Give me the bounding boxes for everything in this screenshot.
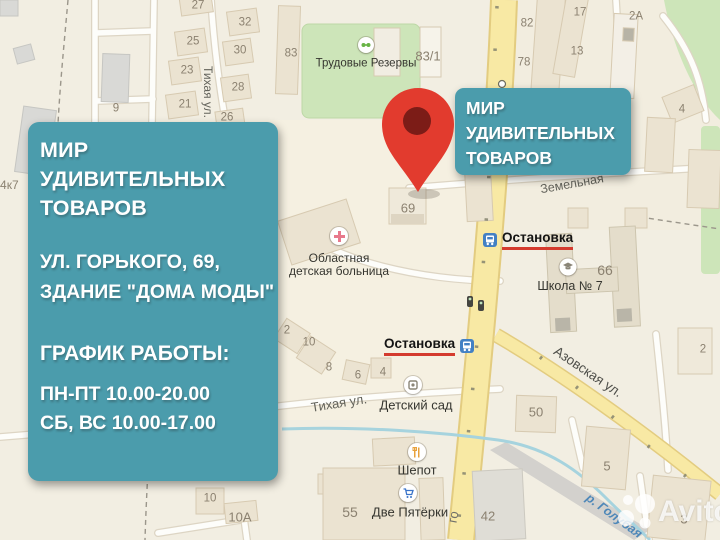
- house-number-label: 32: [239, 17, 252, 29]
- bus-stop-icon: [483, 233, 497, 247]
- shopping-cart-icon: [399, 484, 417, 502]
- info-card-schedule-line: СБ, ВС 10.00-17.00: [40, 409, 278, 438]
- callout-line: УДИВИТЕЛЬНЫХ: [466, 121, 631, 146]
- house-number-label: 83: [285, 48, 298, 60]
- map-canvas[interactable]: Тихая ул. Тихая ул. Земельная Азовская у…: [0, 0, 720, 540]
- house-number-label: 55: [342, 505, 358, 519]
- house-number-label: 25: [187, 36, 200, 48]
- poi-label-kindergarten: Детский сад: [379, 399, 452, 412]
- house-number-label: 2А: [629, 11, 643, 23]
- house-number-label: 6: [355, 370, 361, 382]
- house-number-label: 42: [481, 510, 495, 523]
- kindergarten-icon: [404, 376, 422, 394]
- poi-label-shepot: Шепот: [397, 464, 436, 477]
- bus-stop-label: Остановка: [384, 336, 455, 356]
- bus-stop-label: Остановка: [502, 230, 573, 250]
- poi-label-hospital-line2: детская больница: [289, 265, 389, 277]
- house-number-label: 10: [204, 493, 217, 505]
- school-icon: [560, 259, 577, 276]
- poi-label-dve-pyaterki: Две Пятёрки: [372, 506, 448, 519]
- house-number-label: 30: [234, 45, 247, 57]
- info-card-title-line: МИР: [40, 136, 278, 165]
- avito-logo-icon: [614, 490, 658, 535]
- sports-ground-icon: [358, 37, 374, 53]
- poi-label-school: Школа № 7: [537, 280, 602, 293]
- poi-label-trudovye-rezervy: Трудовые Резервы: [316, 58, 417, 70]
- info-card-schedule-heading: ГРАФИК РАБОТЫ:: [40, 339, 278, 368]
- info-card: МИР УДИВИТЕЛЬНЫХ ТОВАРОВ УЛ. ГОРЬКОГО, 6…: [28, 122, 278, 481]
- info-card-title-line: УДИВИТЕЛЬНЫХ: [40, 165, 278, 194]
- house-number-label: 27: [192, 0, 205, 12]
- house-number-label: 28: [232, 82, 245, 94]
- house-number-label: 69: [401, 202, 415, 215]
- house-number-label: 82: [521, 18, 534, 30]
- bus-stop-badge-south: Остановка: [384, 336, 474, 356]
- house-number-label: 21: [179, 99, 192, 111]
- bus-stop-icon: [460, 339, 474, 353]
- restaurant-icon: [408, 443, 426, 461]
- house-number-label: 2: [700, 344, 706, 356]
- house-number-label: 83/1: [415, 50, 440, 63]
- house-number-label: 2: [284, 325, 290, 337]
- house-number-label: 78: [518, 57, 531, 69]
- avito-watermark: Avito: [614, 490, 720, 535]
- house-number-label: 23: [181, 65, 194, 77]
- info-card-schedule-line: ПН-ПТ 10.00-20.00: [40, 380, 278, 409]
- hospital-icon: [330, 227, 348, 245]
- callout-line: МИР: [466, 96, 631, 121]
- house-number-label: 13: [571, 46, 584, 58]
- house-number-label: 4: [679, 104, 685, 116]
- house-number-label: 10А: [228, 511, 251, 524]
- info-card-title-line: ТОВАРОВ: [40, 194, 278, 223]
- house-number-label: 8: [326, 362, 332, 374]
- info-card-address-line: ЗДАНИЕ "ДОМА МОДЫ": [40, 277, 278, 307]
- avito-watermark-text: Avito: [658, 495, 720, 529]
- callout-line: ТОВАРОВ: [466, 146, 631, 171]
- marker-callout-card: МИР УДИВИТЕЛЬНЫХ ТОВАРОВ: [455, 88, 631, 175]
- bus-stop-badge-north: Остановка: [483, 230, 573, 250]
- house-number-label: 9: [113, 103, 119, 115]
- house-number-label: 66: [597, 263, 613, 277]
- map-pin-icon: [378, 84, 460, 200]
- street-label-tihaya-vertical: Тихая ул.: [202, 66, 214, 118]
- house-number-label: 64к7: [0, 179, 19, 191]
- house-number-label: 5: [603, 460, 610, 473]
- house-number-label: 10: [303, 337, 316, 349]
- info-card-address-line: УЛ. ГОРЬКОГО, 69,: [40, 247, 278, 277]
- house-number-label: 4: [380, 367, 386, 379]
- house-number-label: 50: [529, 406, 543, 419]
- house-number-label: 17: [574, 7, 587, 19]
- poi-label-hospital-line1: Областная: [309, 252, 370, 264]
